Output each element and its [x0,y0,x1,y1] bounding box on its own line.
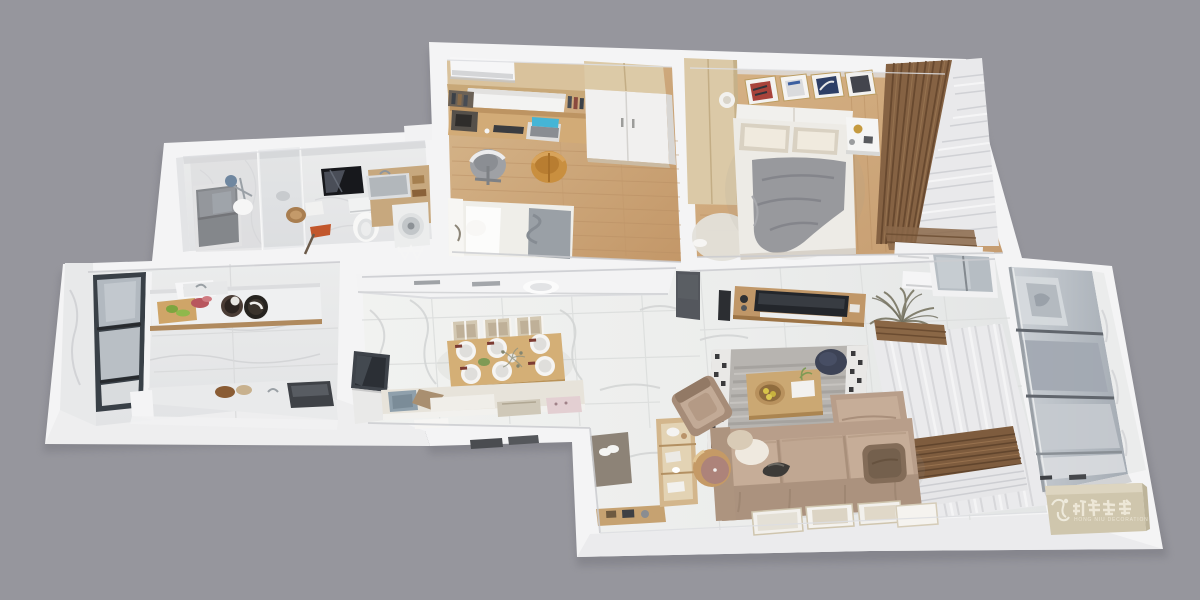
svg-text:HONG NIU DECORATION: HONG NIU DECORATION [1074,517,1149,523]
